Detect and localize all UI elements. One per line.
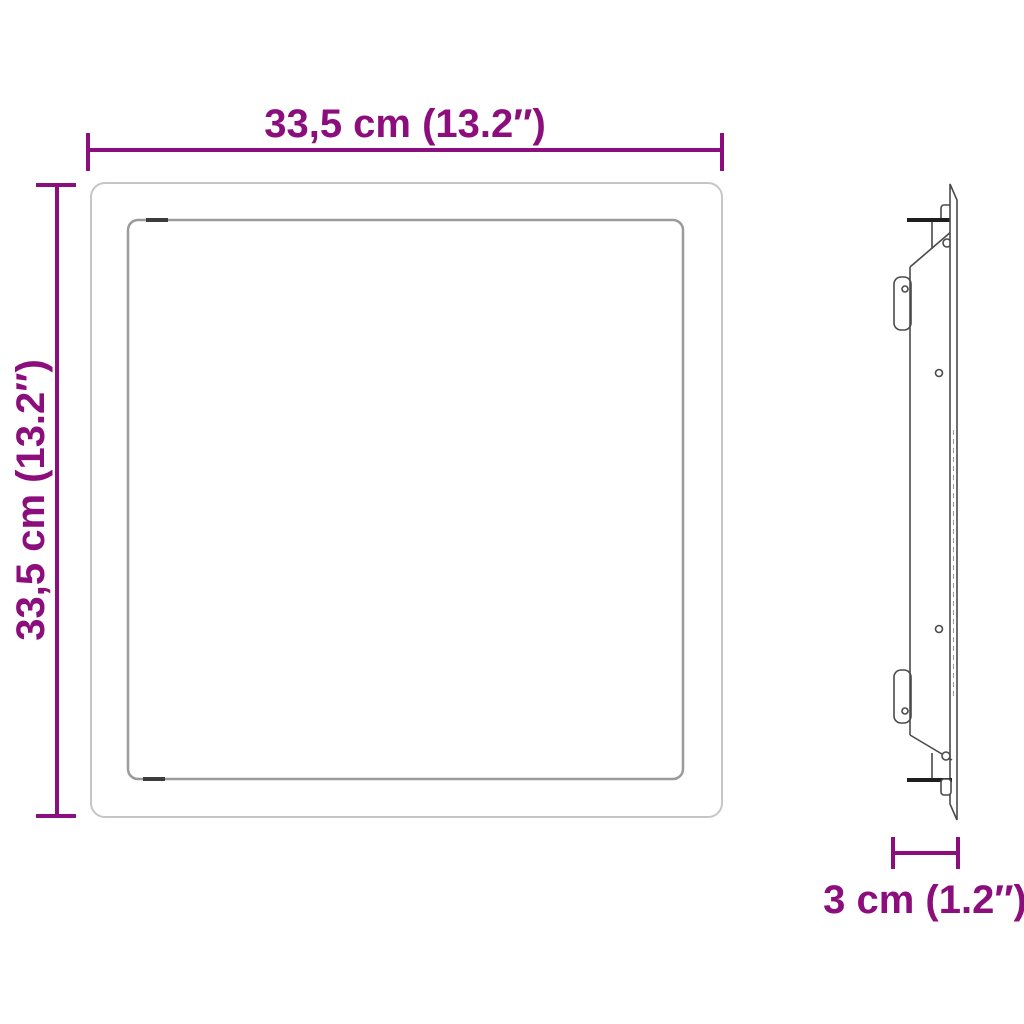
screw-hole-lower <box>936 626 943 633</box>
gusset-diagonal-top <box>910 231 952 267</box>
panel-inner-door <box>128 220 683 779</box>
depth-dimension-label: 3 cm (1.2″) <box>823 878 1024 922</box>
clip-tab-top <box>894 277 911 330</box>
width-dimension: 33,5 cm (13.2″) <box>88 102 722 171</box>
screw-hole-upper <box>936 370 943 377</box>
width-dimension-label: 33,5 cm (13.2″) <box>264 102 546 146</box>
height-dimension-label: 33,5 cm (13.2″) <box>9 359 53 641</box>
latch-tab-bottom <box>941 779 951 795</box>
depth-dimension: 3 cm (1.2″) <box>823 837 1024 922</box>
front-view <box>91 183 722 817</box>
clip-hole-top <box>902 286 908 292</box>
clip-hole-bottom <box>902 708 908 714</box>
side-view <box>894 184 957 820</box>
height-dimension: 33,5 cm (13.2″) <box>9 185 76 816</box>
dimension-diagram: 33,5 cm (13.2″) 33,5 cm (13.2″) 3 cm (1.… <box>0 0 1024 1024</box>
clip-tab-bottom <box>894 670 911 723</box>
diagram-canvas: 33,5 cm (13.2″) 33,5 cm (13.2″) 3 cm (1.… <box>0 0 1024 1024</box>
rivet-bottom <box>942 752 950 760</box>
